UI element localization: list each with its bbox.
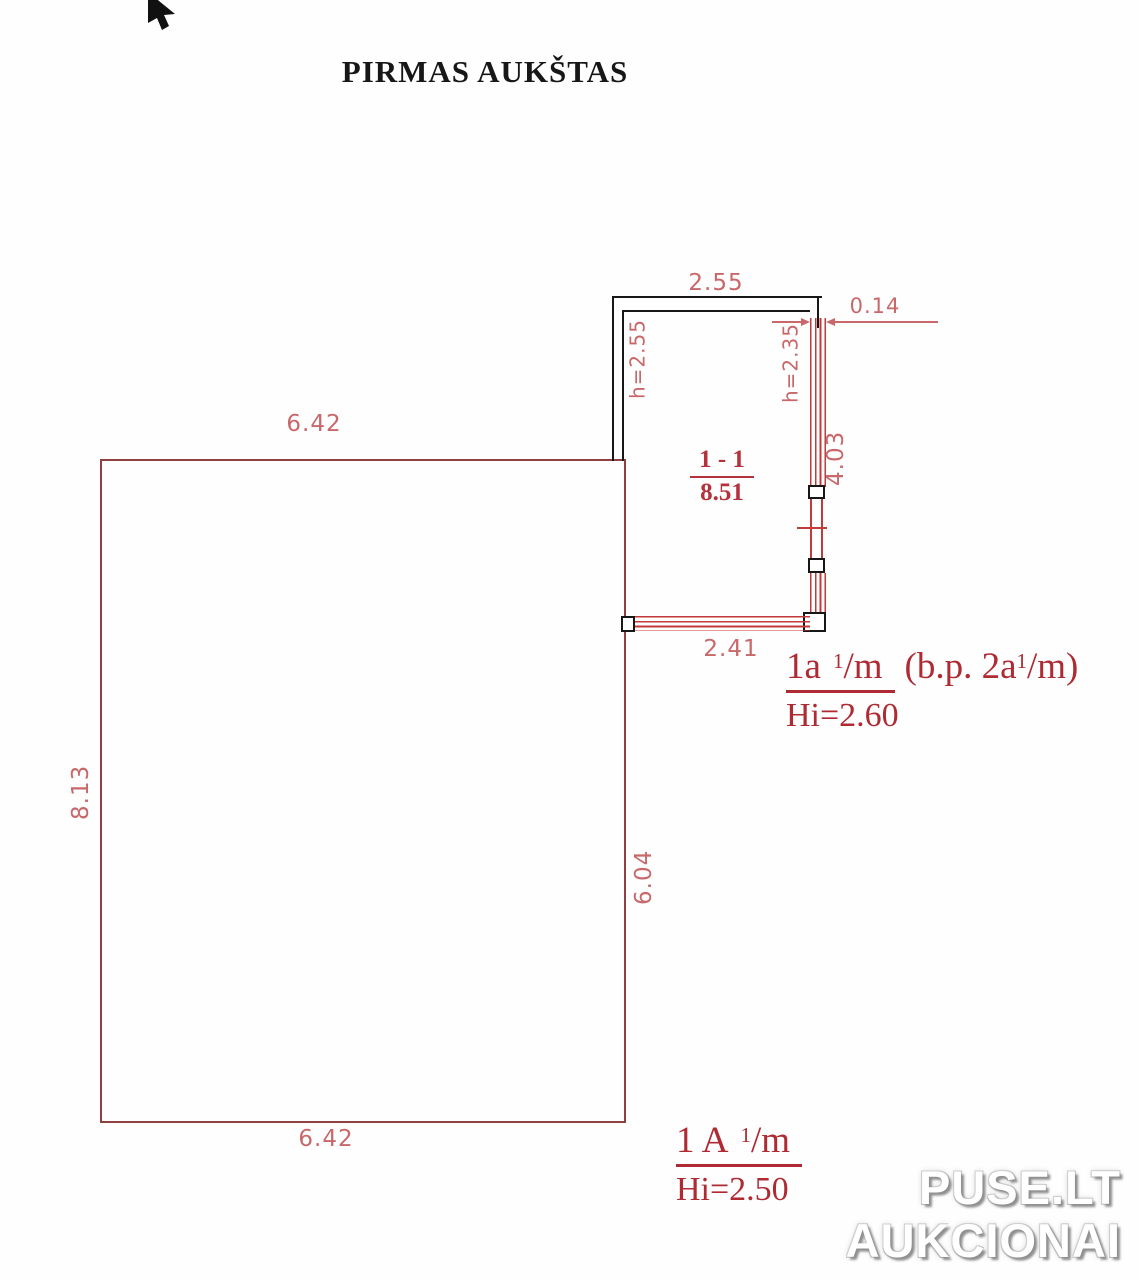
room-area: 8.51 xyxy=(666,479,778,507)
annex-top-wall-outer-line xyxy=(612,296,822,298)
annex-bottom-wall-end-block xyxy=(621,616,635,632)
annex-right-wall-lower-segment xyxy=(810,573,826,614)
mouse-cursor-icon xyxy=(138,0,184,36)
annex-code-extra: (b.p. 2a1/m) xyxy=(905,646,1079,687)
room-number: 1 - 1 xyxy=(690,446,754,478)
dim-annex-bottom-width: 2.41 xyxy=(697,636,765,662)
annex-note: 1a1/m(b.p. 2a1/m) Hi=2.60 xyxy=(786,648,1078,734)
annex-height: Hi=2.60 xyxy=(786,698,1078,734)
annex-top-wall-inner-line xyxy=(622,310,810,312)
window-jamb-bottom-block xyxy=(808,558,825,573)
main-code: 1 A1/m xyxy=(676,1122,802,1167)
annex-code: 1a1/m xyxy=(786,648,895,693)
main-building-outline xyxy=(100,459,626,1123)
annex-left-wall-outer-line xyxy=(612,296,614,461)
page-title: PIRMAS AUKŠTAS xyxy=(318,54,652,90)
annex-bottom-wall xyxy=(634,616,810,631)
dim-main-bottom-width: 6.42 xyxy=(294,1126,358,1152)
floor-plan-page: PIRMAS AUKŠTAS 0.14 2.55 2.41 4.03 h=2.5… xyxy=(0,0,1139,1280)
main-note: 1 A1/m Hi=2.50 xyxy=(676,1122,802,1208)
watermark-line2: AUKCIONAI xyxy=(846,1214,1121,1268)
dim-annex-right-height: 4.03 xyxy=(822,424,850,492)
watermark: PUSE.LT AUKCIONAI xyxy=(846,1161,1121,1268)
dim-main-top-width: 6.42 xyxy=(281,411,347,437)
window-center-tick xyxy=(797,527,827,529)
dim-annex-right-wall-height: h=2.35 xyxy=(778,323,803,403)
thickness-dim-line-right xyxy=(834,321,938,323)
dim-wall-thickness: 0.14 xyxy=(843,294,907,318)
annex-left-wall-inner-line xyxy=(622,310,624,461)
dim-annex-top-width: 2.55 xyxy=(684,270,748,296)
dim-annex-left-wall-height: h=2.55 xyxy=(625,320,650,398)
watermark-line1: PUSE.LT xyxy=(846,1161,1121,1215)
dim-main-inner-right-height: 6.04 xyxy=(629,843,659,911)
room-label: 1 - 1 8.51 xyxy=(666,446,778,506)
main-height: Hi=2.50 xyxy=(676,1172,802,1208)
dim-main-left-height: 8.13 xyxy=(66,758,96,826)
